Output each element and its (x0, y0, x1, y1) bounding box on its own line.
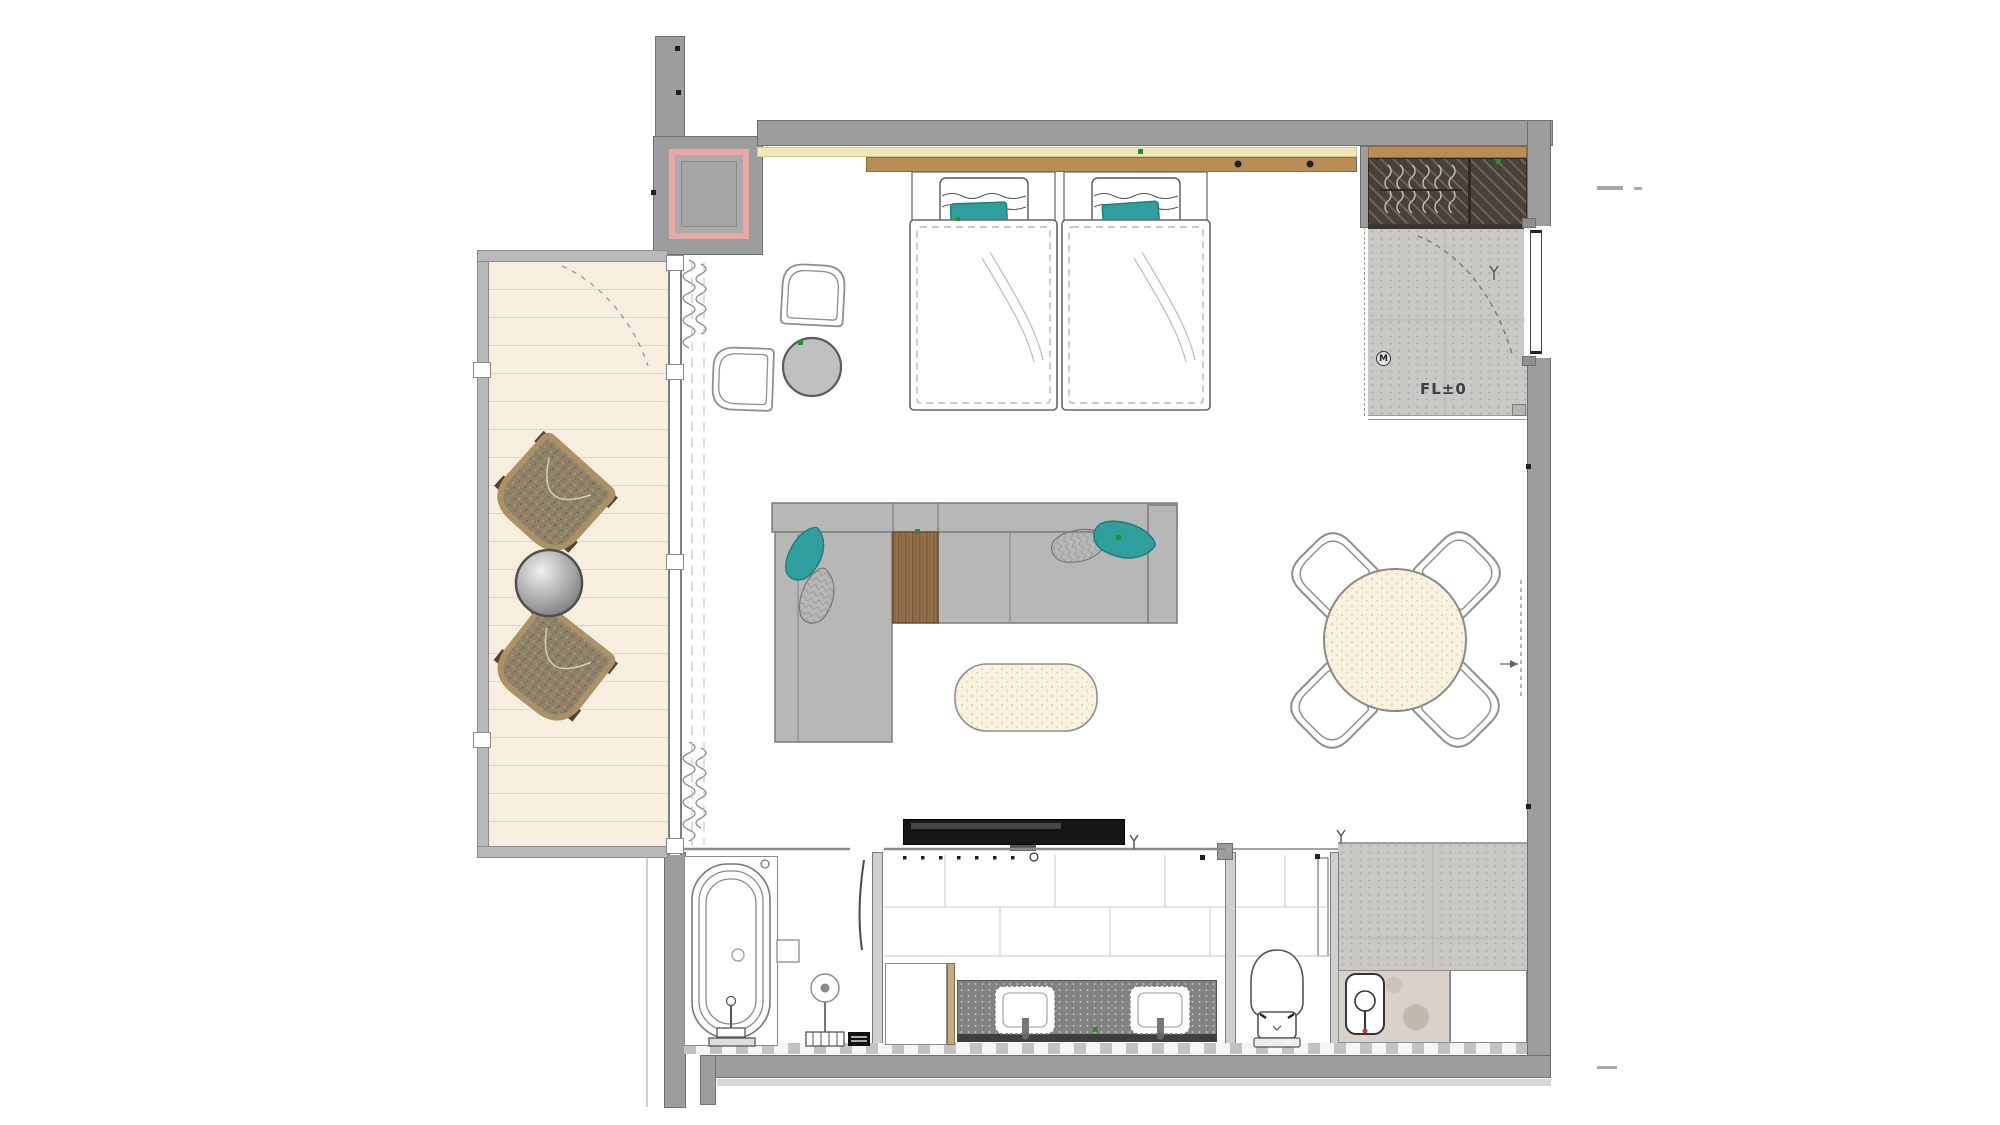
balcony-deck-floor (489, 262, 668, 846)
rail-post (473, 362, 491, 378)
south-wall-stub (700, 1055, 716, 1105)
bathroom-door-leaf (860, 860, 864, 950)
teal-cushion (1091, 518, 1158, 563)
entrance-door-leaf (1530, 230, 1542, 354)
bathroom-threshold (684, 1043, 1527, 1054)
closet-top-wood (1368, 146, 1527, 158)
side-table (783, 338, 841, 396)
teal-cushion (780, 521, 832, 586)
balcony-rail-west (477, 250, 489, 858)
tv-mount (1010, 845, 1036, 851)
sofa (772, 503, 1177, 742)
drawing-tick (1597, 186, 1623, 190)
entry-step-edge (1368, 415, 1527, 420)
closet-front-edge (1368, 224, 1527, 229)
entry-boundary-line (1364, 146, 1365, 416)
party-wall-bottom (664, 852, 686, 1108)
partition-bath-vanity (872, 852, 883, 1045)
closet-interior (1368, 158, 1527, 226)
toilet-door-leaf (1318, 858, 1328, 956)
bed-2 (1062, 172, 1210, 410)
window-mullion (666, 364, 684, 380)
armchair-2 (712, 347, 774, 411)
armchair-1 (781, 263, 846, 326)
bed-headboard-panel (866, 157, 1357, 172)
south-wall-shadow (717, 1079, 1551, 1086)
bed-1 (910, 172, 1057, 410)
neighbor-boundary-line (646, 855, 648, 1107)
drawing-tick (1597, 1066, 1617, 1069)
tv-screen-band (911, 823, 1061, 829)
door-jamb (1522, 218, 1536, 228)
patterned-cushion (795, 564, 839, 626)
drawing-tick (1634, 187, 1642, 190)
dining-set (1283, 524, 1508, 756)
door-pivot (1030, 853, 1038, 861)
wall-pillar (1217, 843, 1233, 860)
vanity-counter (957, 980, 1217, 1042)
rail-post (473, 732, 491, 748)
door-jamb (1522, 356, 1536, 366)
meter-mark: M (1376, 351, 1391, 366)
shower-set (806, 974, 870, 1046)
minibar-counter (1338, 970, 1450, 1043)
closet-divider (1468, 158, 1471, 226)
bath-cabinet (885, 963, 947, 1045)
window-mullion (666, 255, 684, 271)
balcony-rail-north (477, 250, 668, 262)
ottoman (955, 664, 1097, 731)
south-exterior-wall (700, 1055, 1551, 1078)
party-wall-top (655, 36, 685, 152)
partition-vanity-toilet (1225, 852, 1236, 1045)
floor-plan: FL±0 M (0, 0, 2000, 1125)
curtains (683, 260, 706, 845)
pipe-shaft-core (681, 161, 737, 227)
floor-level-label: FL±0 (1420, 380, 1467, 398)
sofa-side-table (893, 532, 938, 623)
vanity-counter-edge (957, 1034, 1217, 1042)
minibar-cabinet (1450, 970, 1527, 1043)
wall-annotation (1500, 580, 1521, 700)
patterned-cushion (1048, 523, 1111, 568)
window-mullion (666, 554, 684, 570)
cabinet-side-panel (947, 963, 955, 1045)
toilet (1251, 950, 1303, 1047)
dining-table (1324, 569, 1466, 711)
floor-tile-grid (884, 855, 1330, 956)
balcony-rail-south (477, 846, 668, 858)
door-stop (1512, 404, 1526, 416)
north-exterior-wall (757, 120, 1553, 146)
window-mullion (666, 838, 684, 854)
bathtub-enclosure (684, 856, 778, 1046)
luggage-nook-floor (1338, 842, 1527, 970)
cove-light-strip (757, 147, 1357, 157)
